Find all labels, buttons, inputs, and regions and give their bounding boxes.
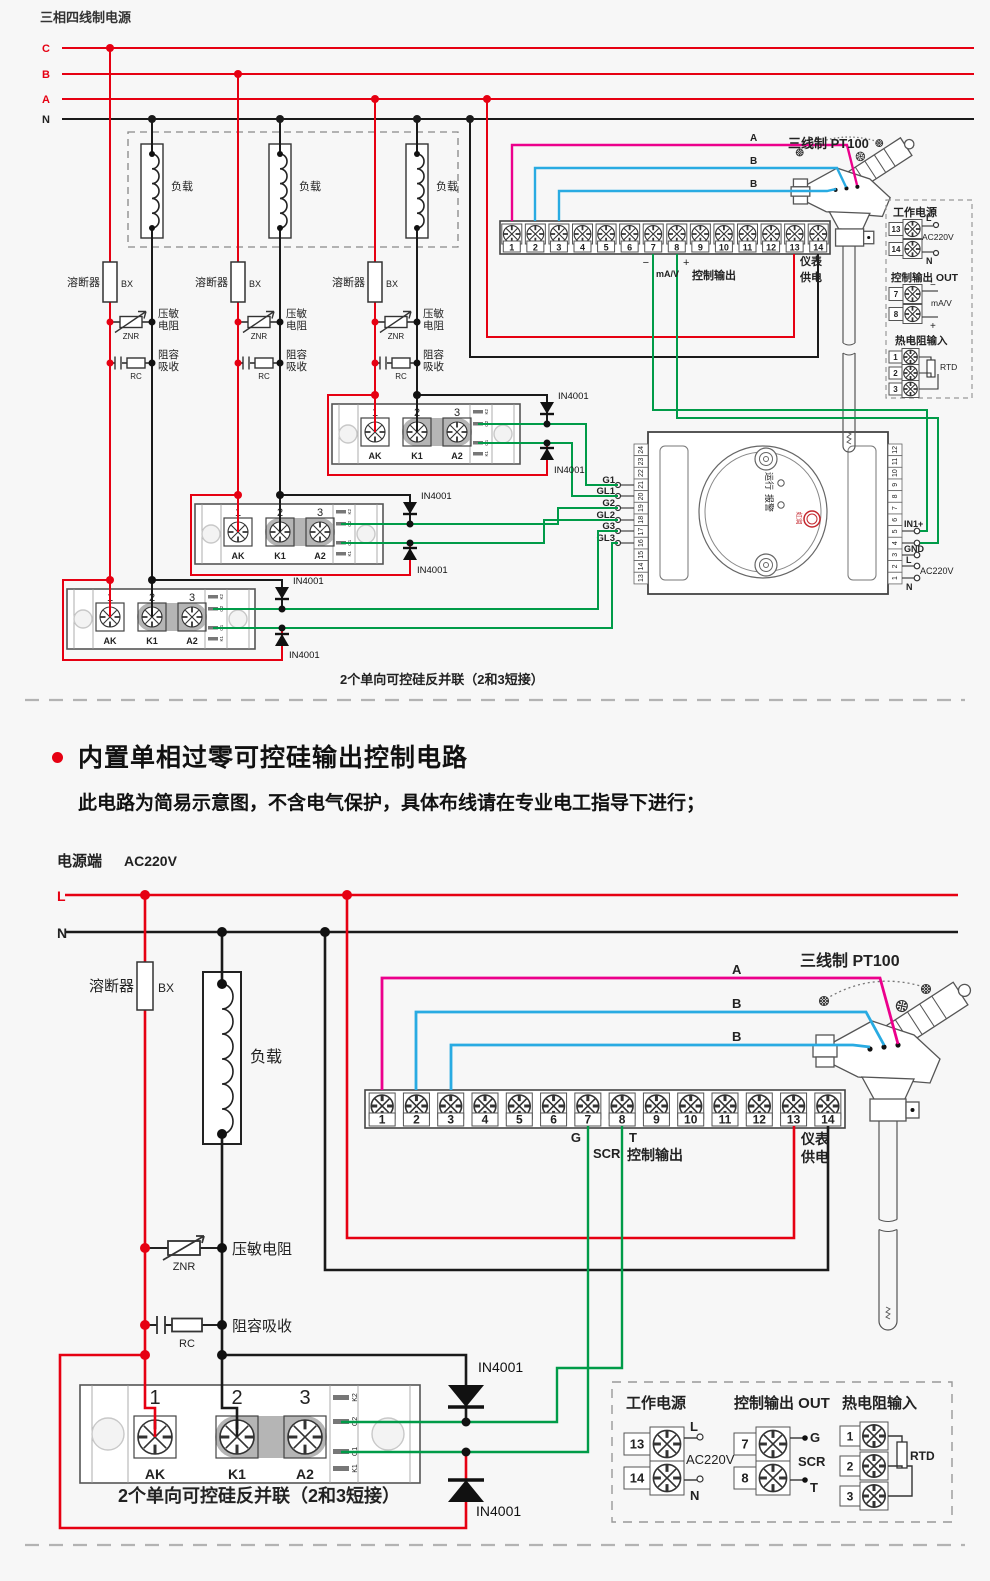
element-squiggle (886, 1307, 890, 1319)
znr-code: ZNR (388, 332, 405, 341)
legend-title: 工作电源 (626, 1394, 686, 1412)
junction-dot (217, 979, 227, 989)
diode-label: IN4001 (421, 491, 452, 502)
terminal-number: 17 (638, 527, 645, 535)
ssr-caption: 2个单向可控硅反并联（2和3短接） (118, 1485, 400, 1506)
label: 供电 (800, 1149, 829, 1165)
controller-left-terminals: 242322212019181716151413 (634, 444, 648, 584)
screw-icon (759, 1430, 786, 1457)
junction-dot (407, 540, 414, 547)
screw-icon (905, 286, 920, 301)
label: BX (158, 981, 174, 995)
fuse-label: 溶断器 (195, 275, 228, 289)
junction-dot (372, 360, 379, 367)
mount-hole (229, 610, 247, 628)
label: RC (179, 1338, 195, 1350)
legend-title: 热电阻输入 (842, 1394, 917, 1412)
junction-dot (414, 360, 421, 367)
terminal-number: 4 (482, 1113, 489, 1127)
terminal-number: 3 (189, 592, 195, 604)
brand-logo-text: 虹润 (795, 512, 804, 525)
break-mark (843, 343, 855, 355)
connection-point (914, 563, 920, 569)
diode-label: IN4001 (558, 391, 589, 402)
screw-icon (668, 226, 685, 243)
screw-icon (653, 1464, 680, 1491)
rc-code: RC (395, 372, 407, 381)
path (448, 1480, 484, 1502)
terminal-label: K1 (228, 1466, 246, 1482)
screw-icon (447, 422, 467, 442)
wire (451, 1045, 870, 1090)
junction-dot (234, 70, 242, 78)
label: AC220V (124, 853, 178, 869)
junction-dot (107, 319, 114, 326)
screw-icon (820, 997, 829, 1006)
pt100-shaft-top (843, 246, 855, 452)
diagram-title: 三相四线制电源 (40, 10, 131, 25)
load-label: 负载 (436, 179, 458, 193)
collar (870, 1099, 906, 1121)
junction-dot (277, 360, 284, 367)
terminal-number: 8 (741, 1471, 748, 1486)
varistor (380, 312, 411, 333)
junction-dot (148, 576, 156, 584)
junction-dot (802, 1435, 808, 1441)
gate-bar (208, 637, 218, 641)
label: N (906, 582, 913, 592)
label: A (732, 962, 742, 977)
screw-icon (310, 522, 330, 542)
terminal-number: 10 (892, 469, 899, 477)
terminal-label: AK (232, 551, 245, 561)
path (448, 1385, 484, 1407)
connection-point (914, 575, 920, 581)
junction-dot (279, 625, 286, 632)
fuse-body (103, 262, 117, 302)
screw-icon (863, 1425, 885, 1447)
screw-icon (288, 1420, 322, 1454)
bottom-legend-box: 工作电源1314LAC220VN控制输出 OUT78GSCRT热电阻输入123R… (612, 1382, 952, 1522)
screw-icon (904, 350, 918, 364)
label: 阻容 (423, 348, 444, 361)
sensor-neck (862, 1077, 914, 1101)
terminal-number: 3 (847, 1489, 854, 1503)
junction-dot (217, 927, 227, 937)
terminal-number: 14 (813, 243, 823, 253)
diode-icon (403, 548, 417, 560)
gate-bar (336, 552, 346, 556)
terminal-number: 4 (580, 243, 585, 253)
label: 控制输出 (692, 268, 736, 282)
alarm-led (778, 502, 784, 508)
capacitor (115, 357, 121, 370)
terminal-number: 8 (892, 494, 899, 498)
terminal-label: K1 (274, 551, 286, 561)
diode-label: IN4001 (417, 565, 448, 576)
terminal-number: 22 (638, 469, 645, 477)
terminal-number: 24 (638, 446, 645, 454)
mount-hole (339, 425, 357, 443)
terminal-number: 2 (533, 243, 538, 253)
ssr-module-3: 1AK2K13A2K2G2G1K1 (332, 404, 520, 464)
label: 控制输出 (627, 1147, 683, 1163)
terminal-number: 10 (684, 1113, 698, 1127)
screw-icon (503, 226, 520, 243)
label: RTD (910, 1449, 935, 1463)
terminal-number: 6 (550, 1113, 557, 1127)
terminal-label: AK (145, 1466, 165, 1482)
diode-label: IN4001 (289, 650, 320, 661)
label: IN1+ (904, 519, 923, 529)
junction-dot (140, 890, 150, 900)
fuse-body (137, 962, 153, 1010)
top-legend-box: 工作电源1314LAC220VN控制输出 OUT78−mA/V+热电阻输入123… (886, 200, 972, 398)
junction-dot (413, 115, 421, 123)
junction-dot (217, 1243, 227, 1253)
junction-dot (911, 1108, 915, 1112)
terminal-number: 1 (892, 576, 899, 580)
junction-dot (802, 1477, 808, 1483)
terminal-number: 14 (630, 1471, 645, 1486)
sensor-title: 三线制 PT100 (800, 951, 900, 970)
wire (341, 1126, 622, 1422)
gate-label: K1 (352, 1464, 359, 1473)
rc-snubber (380, 357, 410, 370)
screw-icon (786, 226, 803, 243)
junction-dot (217, 1129, 227, 1139)
junction-dot (276, 115, 284, 123)
label: SCR (593, 1146, 621, 1161)
diode-icon (275, 587, 289, 599)
gate-bar (473, 452, 483, 456)
junction-dot (217, 1320, 227, 1330)
label: B (750, 179, 757, 190)
fuse-label: 溶断器 (67, 275, 100, 289)
label: + (930, 321, 936, 332)
sensor-title: 三线制 PT100 (788, 136, 869, 151)
label: 供电 (799, 270, 822, 284)
wire (382, 978, 898, 1090)
screw-icon (876, 140, 883, 147)
label: 阻容 (286, 348, 307, 361)
rc-code: RC (130, 372, 142, 381)
junction-dot (149, 319, 156, 326)
junction-dot (276, 491, 284, 499)
terminal-number: 11 (719, 1113, 732, 1127)
gate-label: K1 (219, 636, 224, 642)
run-led (778, 480, 784, 486)
wire (879, 1121, 897, 1220)
fuse-body (368, 262, 382, 302)
label: 仪表 (800, 1131, 830, 1147)
path (403, 502, 417, 514)
rc-snubber (115, 357, 145, 370)
terminal-number: 13 (638, 574, 645, 582)
junction-dot (149, 225, 155, 231)
stub (888, 1466, 912, 1496)
terminal-number: 3 (893, 385, 898, 394)
terminal-number: 13 (892, 225, 901, 234)
label: mA/V (931, 298, 952, 308)
junction-dot (867, 236, 870, 239)
terminal-number: 14 (821, 1113, 835, 1127)
label: N (926, 256, 933, 266)
gate-bar (208, 595, 218, 599)
stub (888, 1436, 902, 1442)
terminal-number: 19 (638, 504, 645, 512)
nut (793, 196, 807, 204)
terminal-number: 12 (892, 446, 899, 454)
wiring-diagram-page: 123456789101112131412345678910111213141A… (0, 0, 990, 1581)
pt100-shaft-bottom (879, 1121, 897, 1330)
junction-dot (462, 1418, 471, 1427)
connection-point (914, 528, 920, 534)
junction-dot (371, 391, 379, 399)
screw-icon (739, 226, 756, 243)
screw-icon (653, 1430, 680, 1457)
diode-icon (275, 634, 289, 646)
terminal-label: K1 (146, 636, 158, 646)
gate-label: K2 (219, 594, 224, 600)
strip-body (365, 1090, 845, 1128)
gate-label: K2 (484, 409, 489, 415)
terminal-number: 5 (604, 243, 609, 253)
label: AC220V (922, 232, 954, 242)
terminal-number: 13 (787, 1113, 801, 1127)
path (275, 587, 289, 599)
terminal-number: 14 (892, 245, 901, 254)
mount-hole (494, 425, 512, 443)
terminal-number: 12 (753, 1113, 767, 1127)
diode-icon (403, 502, 417, 514)
resistor (255, 358, 273, 368)
capacitor (157, 1316, 165, 1334)
label: L (690, 1419, 698, 1434)
terminal-number: 2 (893, 369, 898, 378)
label: 阻容吸收 (232, 1318, 292, 1335)
path (403, 548, 417, 560)
terminal-number: 1 (847, 1429, 854, 1443)
terminal-number: 2 (413, 1113, 420, 1127)
phase-label: B (42, 69, 50, 81)
terminal-number: 2 (847, 1459, 854, 1473)
gate-label: K1 (484, 451, 489, 457)
junction-dot (407, 521, 414, 528)
terminal-label: AK (369, 451, 382, 461)
junction-dot (279, 606, 286, 613)
label: 压敏 (158, 307, 179, 320)
label: L (57, 888, 66, 904)
label: L (906, 555, 912, 565)
terminal-number: 9 (698, 243, 703, 253)
terminal-number: 9 (653, 1113, 660, 1127)
junction-dot (149, 151, 155, 157)
junction-dot (140, 1243, 150, 1253)
section-subtitle: 此电路为简易示意图，不含电气保护，具体布线请在专业电工指导下进行； (78, 788, 938, 815)
terminal-number: 1 (509, 243, 514, 253)
junction-dot (277, 225, 283, 231)
capacitor (243, 357, 249, 370)
junction-dot (414, 151, 420, 157)
junction-dot (140, 1350, 150, 1360)
gate-label: K2 (352, 1393, 359, 1402)
screw-icon (905, 221, 920, 236)
terminal-label: A2 (186, 636, 198, 646)
label: 吸收 (423, 360, 444, 373)
screw-icon (810, 226, 827, 243)
label: + (683, 257, 689, 269)
terminal-number: 7 (741, 1437, 748, 1452)
terminal-label: K1 (411, 451, 423, 461)
collar (836, 229, 864, 246)
label: G (571, 1130, 581, 1145)
fuse-code: BX (121, 279, 133, 289)
gate-label: K1 (347, 551, 352, 557)
fuse-label: 溶断器 (89, 978, 134, 995)
label: 吸收 (158, 360, 179, 373)
screw-icon (598, 226, 615, 243)
inner-panel (660, 446, 688, 580)
terminal-number: 13 (630, 1437, 644, 1452)
run-label: 运行 (764, 472, 775, 490)
junction-dot (140, 1320, 150, 1330)
junction-dot (881, 1044, 886, 1049)
rc-snubber (243, 357, 273, 370)
terminal-number: 5 (516, 1113, 523, 1127)
gate-bar (336, 510, 346, 514)
fuse-body (231, 262, 245, 302)
ssr-module-1: 1AK2K13A2K2G2G1K1 (67, 589, 255, 649)
terminal-number: 21 (638, 481, 645, 489)
terminal-number: 8 (674, 243, 679, 253)
mount-hole (74, 610, 92, 628)
label: B (750, 156, 757, 167)
label: B (732, 1029, 741, 1044)
screw-hole (755, 554, 777, 576)
screw-icon (904, 382, 918, 396)
path (540, 448, 554, 460)
label: 电阻 (286, 319, 307, 332)
terminal-number: 20 (638, 492, 645, 500)
varistor (163, 1236, 204, 1260)
terminal-number: 16 (638, 539, 645, 547)
diode-icon (448, 1480, 484, 1502)
label: 压敏电阻 (232, 1241, 292, 1258)
rc-snubber (157, 1316, 202, 1334)
inner-panel (848, 446, 876, 580)
junction-dot (466, 115, 474, 123)
terminal-number: 10 (719, 243, 729, 253)
gate-label: K2 (347, 509, 352, 515)
terminal-number: 7 (651, 243, 656, 253)
junction-dot (148, 115, 156, 123)
label: T (810, 1480, 818, 1495)
resistor (127, 358, 145, 368)
terminal-number: 8 (619, 1113, 626, 1127)
mount-hole (202, 525, 220, 543)
label: GND (904, 544, 925, 554)
junction-dot (217, 1350, 227, 1360)
bottom-terminal-strip: 1234567891011121314 (365, 1090, 845, 1128)
connection-point (934, 251, 939, 256)
label: AC220V (686, 1452, 735, 1467)
label: B (732, 996, 741, 1011)
phase-label: C (42, 43, 50, 55)
ssr-module-2: 1AK2K13A2K2G2G1K1 (195, 504, 383, 564)
connection-point (697, 1476, 703, 1482)
label: T (629, 1130, 637, 1145)
terminal-number: 2 (231, 1387, 242, 1409)
phase-label: N (42, 114, 50, 126)
label: 电源端 (57, 852, 102, 870)
nut (813, 1045, 837, 1057)
diode-label: IN4001 (476, 1503, 521, 1519)
screw-icon (863, 1485, 885, 1507)
junction-dot (372, 319, 379, 326)
wire (879, 1230, 897, 1322)
wire (347, 895, 794, 1238)
junction-dot (544, 421, 551, 428)
junction-dot (413, 391, 421, 399)
screw-icon (904, 366, 918, 380)
diode-icon (540, 448, 554, 460)
junction-dot (277, 151, 283, 157)
terminal-number: 1 (149, 1387, 160, 1409)
label: N (690, 1488, 699, 1503)
gate-bar (473, 410, 483, 414)
terminal-number: 7 (585, 1113, 592, 1127)
terminal-number: 7 (894, 290, 899, 299)
terminal-number: 15 (638, 551, 645, 559)
screw-icon (621, 226, 638, 243)
junction-dot (414, 225, 420, 231)
junction-dot (149, 360, 156, 367)
terminal-number: 5 (892, 529, 899, 533)
junction-dot (414, 319, 421, 326)
label: 仪表 (799, 254, 823, 268)
load-label: 负载 (250, 1048, 282, 1066)
terminal-number: 3 (892, 553, 899, 557)
terminal-number: 2 (892, 564, 899, 568)
path (275, 634, 289, 646)
gate-bar (333, 1395, 349, 1400)
label: 压敏 (423, 307, 444, 320)
junction-dot (107, 360, 114, 367)
top-terminal-strip: 1234567891011121314 (500, 221, 830, 254)
nut (793, 179, 807, 187)
terminal-label: A2 (296, 1466, 314, 1482)
terminal-label: A2 (314, 551, 326, 561)
terminal-number: 3 (447, 1113, 454, 1127)
diode-label: IN4001 (478, 1359, 523, 1375)
junction-dot (462, 1448, 471, 1457)
load-label: 负载 (299, 179, 321, 193)
label: 阻容 (158, 348, 179, 361)
screw-icon (863, 1455, 885, 1477)
mount-hole (92, 1418, 124, 1450)
phase-label: A (42, 94, 50, 106)
screw-icon (551, 226, 568, 243)
junction-dot (483, 95, 491, 103)
junction-dot (277, 319, 284, 326)
terminal-number: 3 (299, 1387, 310, 1409)
capacitor (380, 357, 386, 370)
varistor (115, 312, 146, 333)
hinge-dotted-line (826, 981, 924, 999)
bullet-icon (52, 752, 63, 763)
wire (487, 99, 794, 337)
